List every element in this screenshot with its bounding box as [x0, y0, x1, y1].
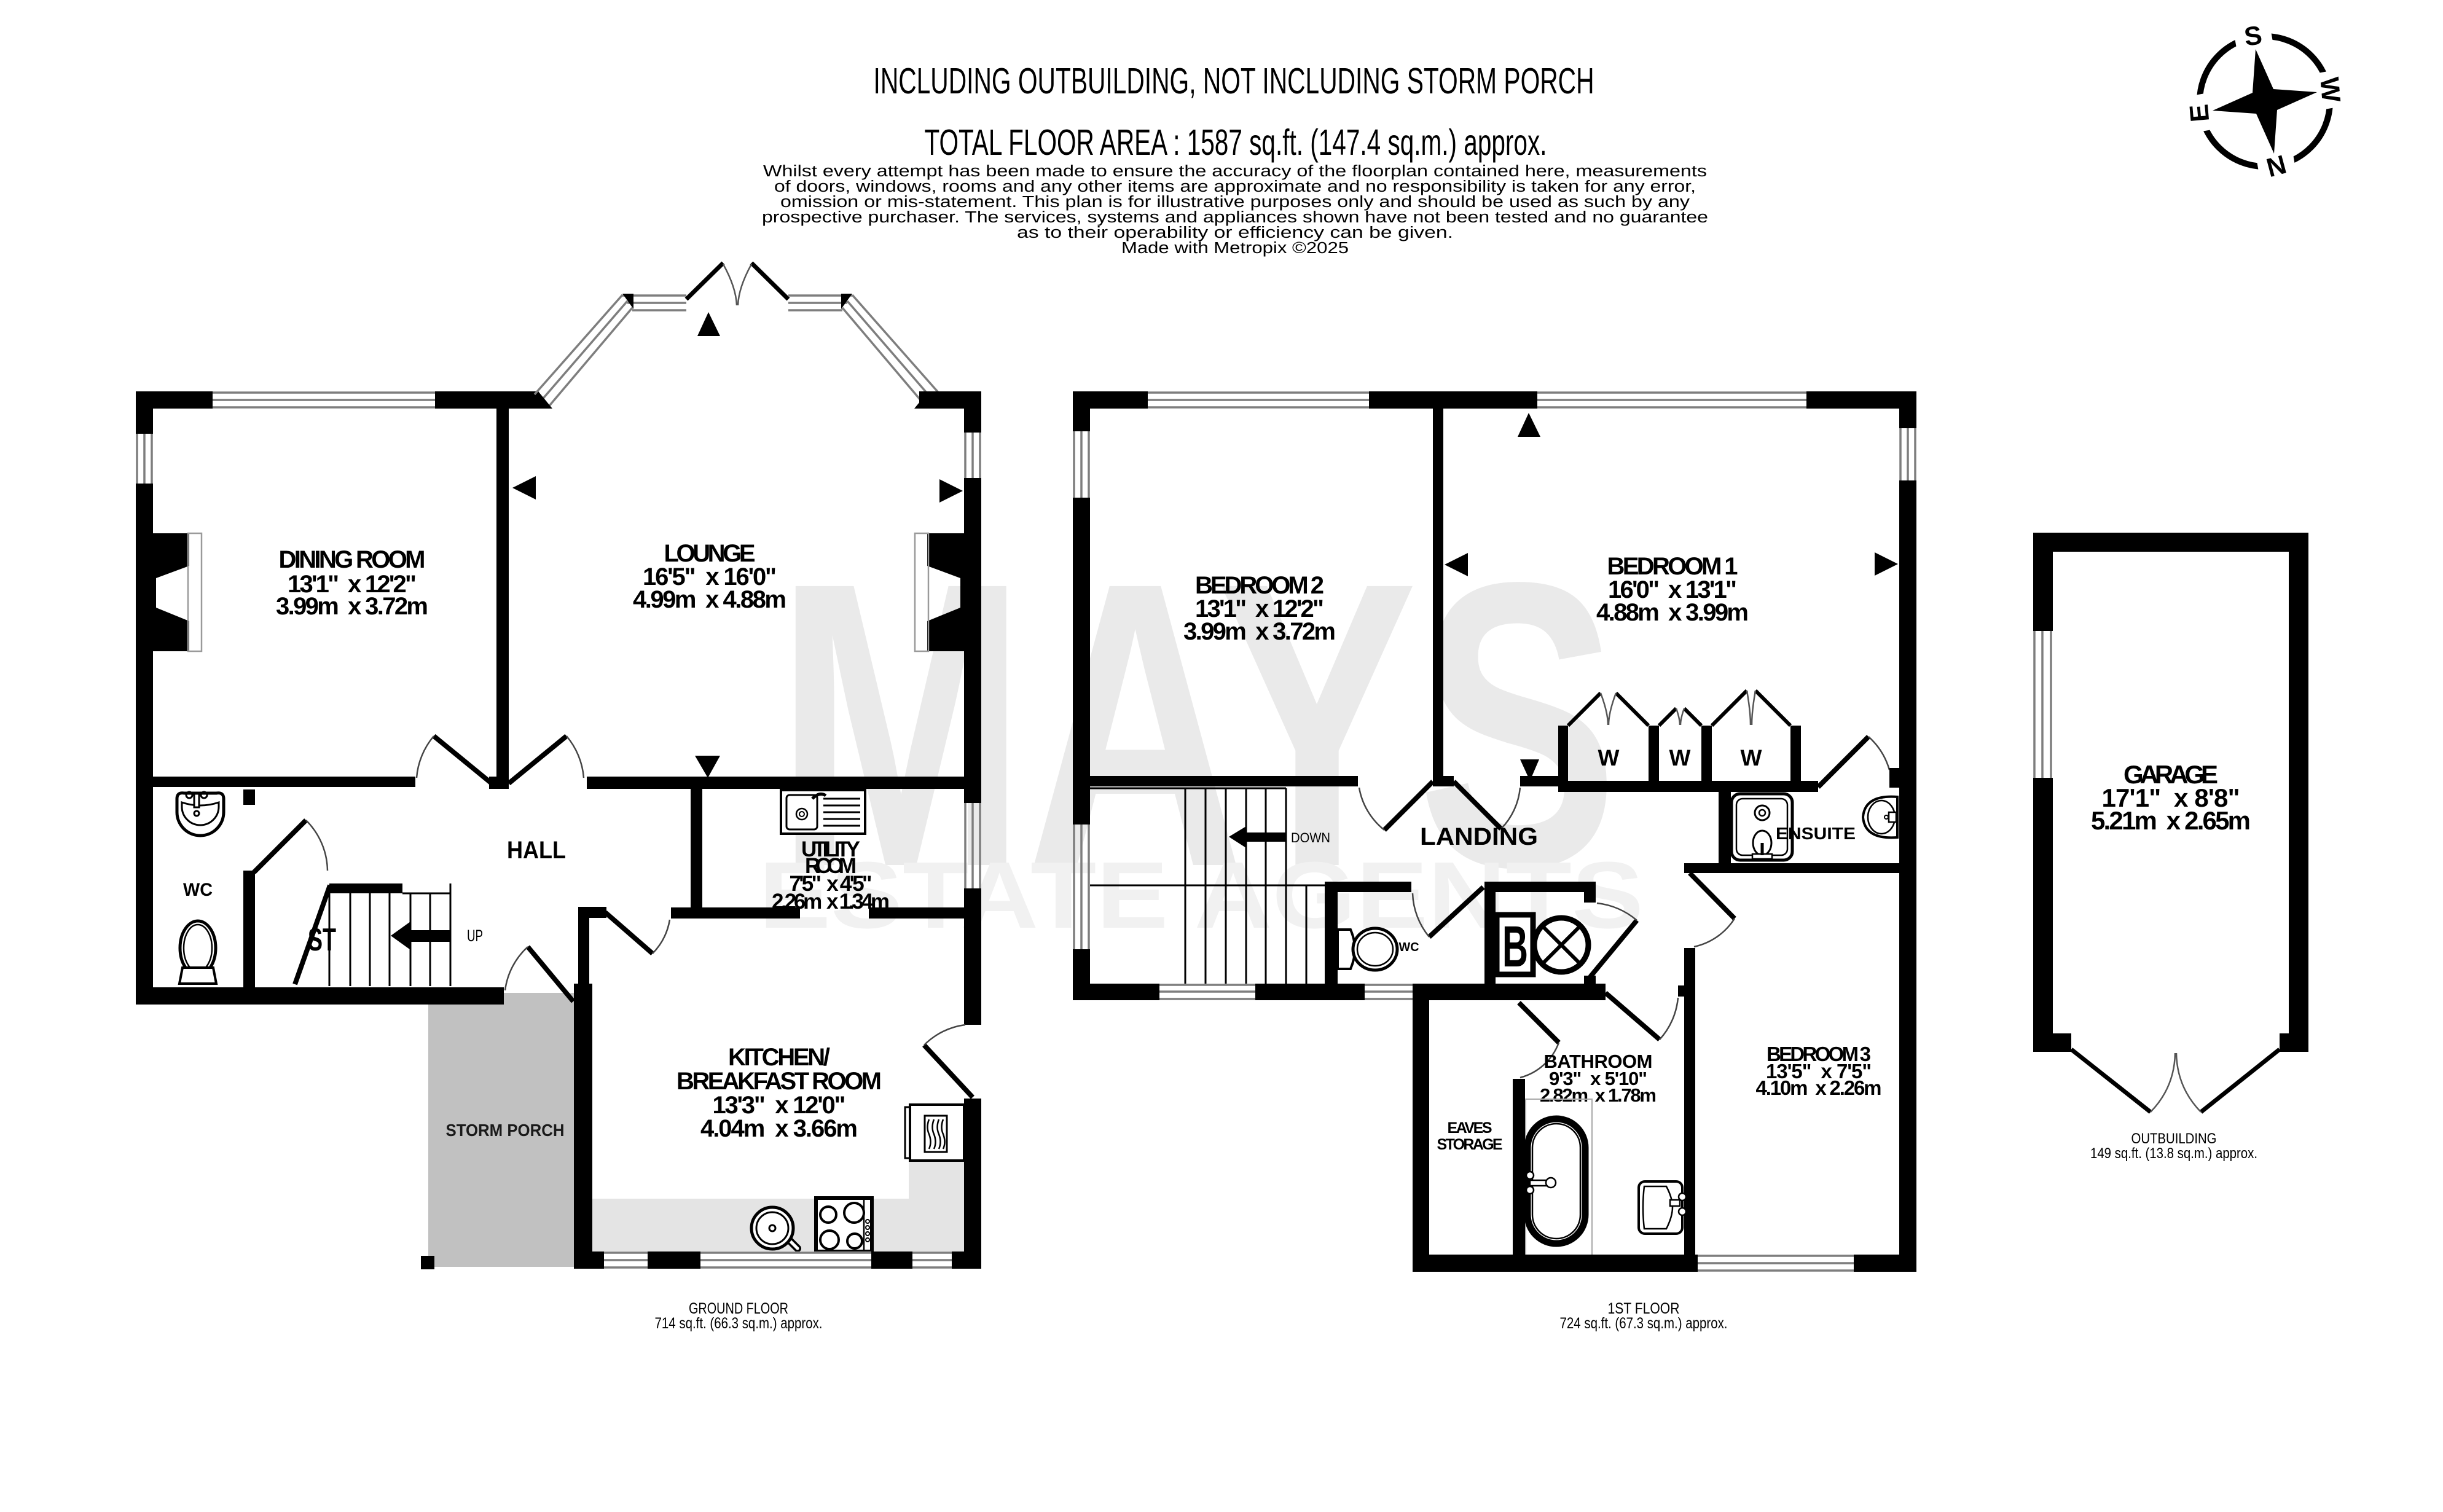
svg-text:4.88m x 3.99m: 4.88m x 3.99m	[1596, 599, 1749, 626]
svg-text:B: B	[1502, 914, 1528, 979]
svg-text:EAVES: EAVES	[1448, 1119, 1492, 1137]
svg-text:ENSUITE: ENSUITE	[1776, 824, 1856, 843]
svg-text:STORAGE: STORAGE	[1437, 1136, 1503, 1153]
svg-text:prospective purchaser. The ser: prospective purchaser. The services, sys…	[762, 209, 1708, 226]
svg-text:4.10m x 2.26m: 4.10m x 2.26m	[1756, 1076, 1882, 1099]
svg-text:HALL: HALL	[507, 837, 566, 864]
svg-text:4.99m x 4.88m: 4.99m x 4.88m	[633, 586, 786, 613]
svg-text:DOWN: DOWN	[1291, 830, 1330, 845]
svg-text:DINING ROOM: DINING ROOM	[279, 546, 426, 573]
svg-text:149 sq.ft. (13.8 sq.m.) approx: 149 sq.ft. (13.8 sq.m.) approx.	[2090, 1145, 2257, 1162]
svg-text:of doors, windows, rooms and a: of doors, windows, rooms and any other i…	[774, 178, 1696, 195]
svg-text:Made with Metropix ©2025: Made with Metropix ©2025	[1121, 240, 1349, 257]
svg-text:3.99m x 3.72m: 3.99m x 3.72m	[276, 593, 428, 620]
svg-text:714 sq.ft. (66.3 sq.m.) approx: 714 sq.ft. (66.3 sq.m.) approx.	[655, 1315, 823, 1332]
svg-text:INCLUDING OUTBUILDING, NOT INC: INCLUDING OUTBUILDING, NOT INCLUDING STO…	[874, 61, 1594, 101]
svg-text:4.04m x 3.66m: 4.04m x 3.66m	[700, 1115, 858, 1142]
svg-text:2.82m x 1.78m: 2.82m x 1.78m	[1540, 1084, 1657, 1106]
svg-text:724 sq.ft. (67.3 sq.m.) approx: 724 sq.ft. (67.3 sq.m.) approx.	[1560, 1315, 1728, 1332]
svg-text:W: W	[1741, 745, 1762, 770]
svg-text:OUTBUILDING: OUTBUILDING	[2131, 1130, 2217, 1147]
svg-text:omission or mis-statement. Thi: omission or mis-statement. This plan is …	[780, 194, 1690, 211]
svg-text:STORM PORCH: STORM PORCH	[446, 1121, 565, 1140]
svg-text:UP: UP	[467, 926, 483, 945]
svg-text:ST: ST	[308, 922, 336, 958]
svg-text:E: E	[2184, 103, 2215, 123]
svg-text:2.26m x 1.34m: 2.26m x 1.34m	[772, 890, 890, 914]
svg-text:as to their operability or eff: as to their operability or efficiency ca…	[1017, 224, 1453, 241]
svg-text:W: W	[1598, 745, 1620, 770]
svg-text:WC: WC	[1399, 941, 1419, 954]
svg-text:KITCHEN/: KITCHEN/	[728, 1044, 830, 1071]
svg-text:W: W	[2314, 76, 2345, 104]
svg-text:TOTAL FLOOR AREA : 1587 sq.ft.: TOTAL FLOOR AREA : 1587 sq.ft. (147.4 sq…	[925, 122, 1547, 163]
svg-text:BREAKFAST ROOM: BREAKFAST ROOM	[676, 1068, 882, 1095]
svg-text:3.99m x 3.72m: 3.99m x 3.72m	[1183, 618, 1336, 645]
svg-text:Whilst every attempt has been: Whilst every attempt has been made to en…	[763, 163, 1707, 180]
svg-text:WC: WC	[183, 880, 213, 900]
svg-text:W: W	[1669, 745, 1691, 770]
svg-text:5.21m x 2.65m: 5.21m x 2.65m	[2091, 806, 2251, 835]
svg-text:LANDING: LANDING	[1420, 823, 1538, 850]
